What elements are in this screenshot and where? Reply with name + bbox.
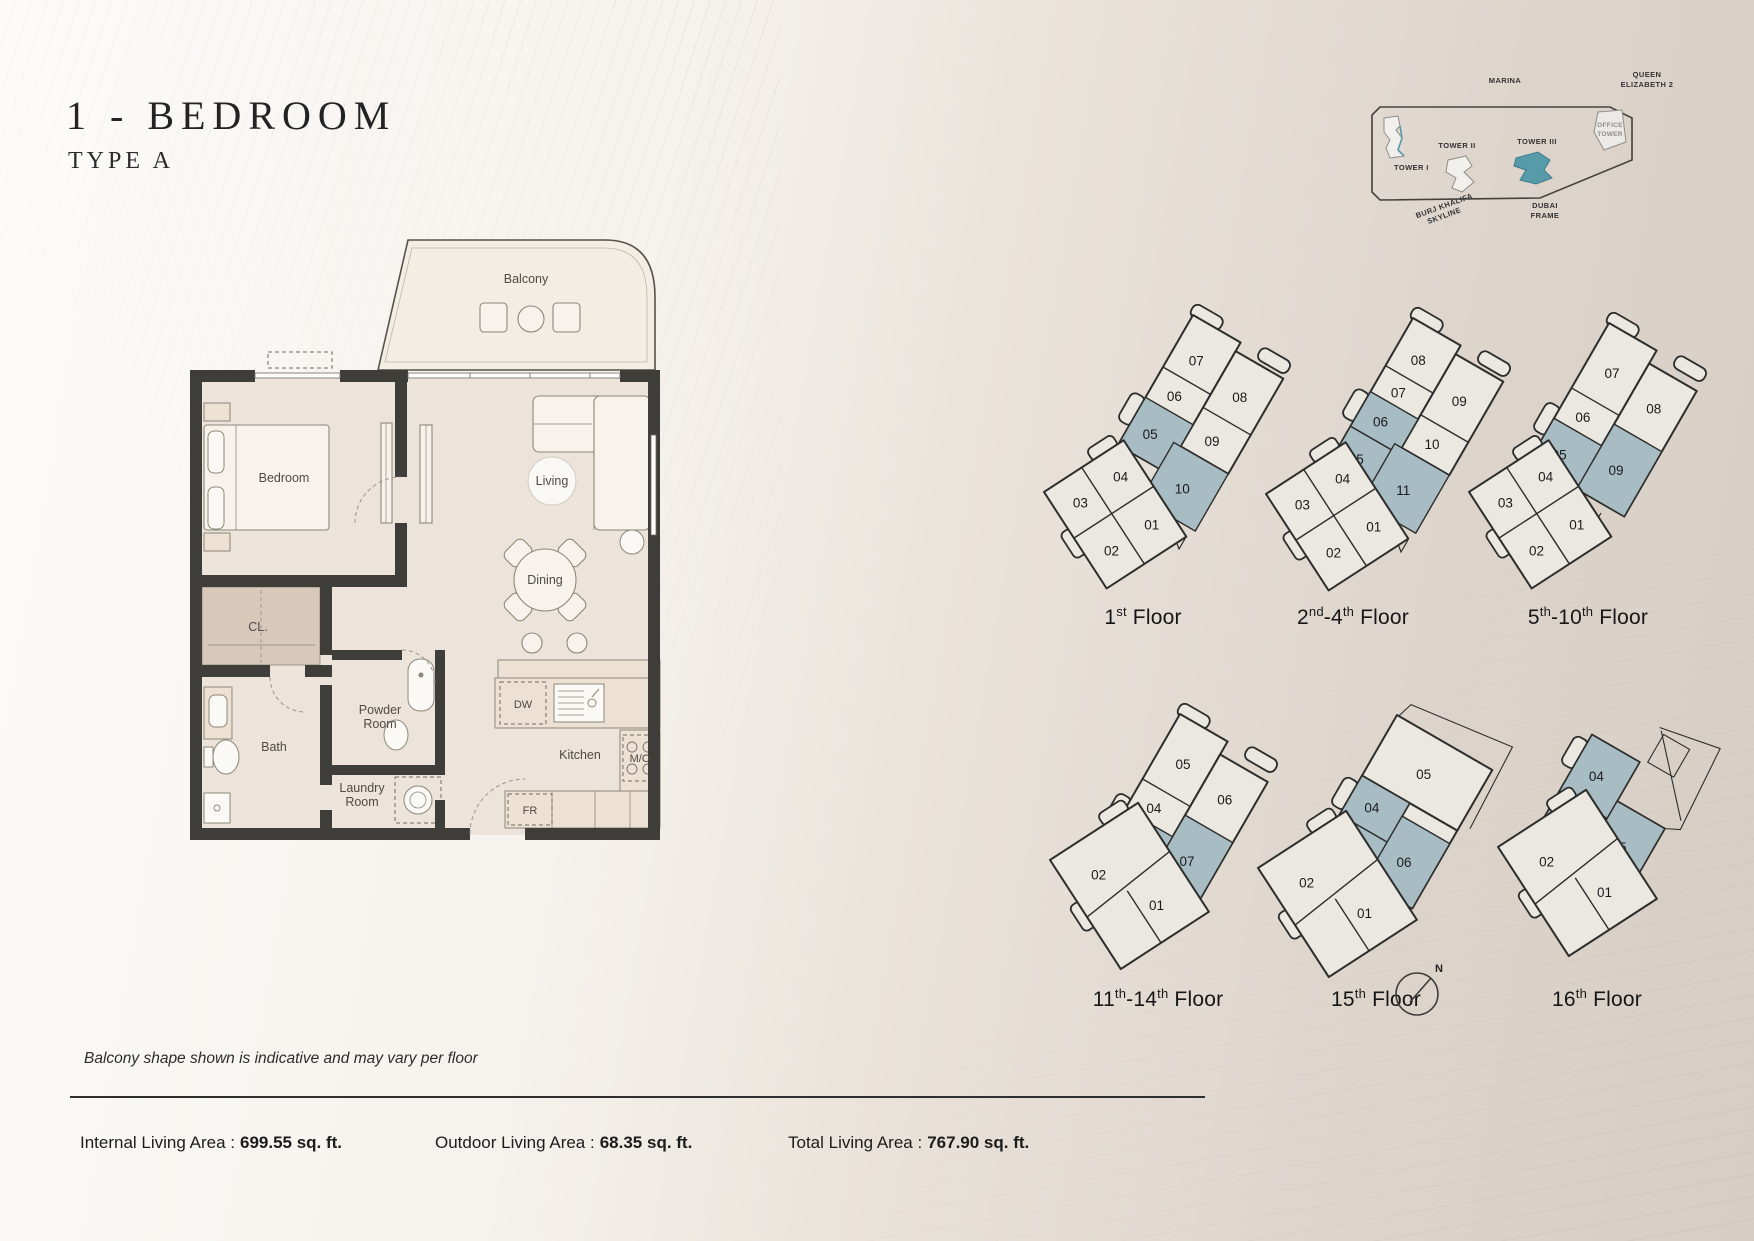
label-balcony: Balcony — [504, 272, 549, 286]
balcony-note: Balcony shape shown is indicative and ma… — [84, 1050, 478, 1068]
label-laundry-1: Laundry — [339, 781, 385, 795]
compass-needle — [1410, 978, 1431, 1002]
unit-number: 04 — [1146, 801, 1162, 816]
unit-number: 05 — [1175, 757, 1190, 772]
unit-number: 08 — [1646, 401, 1661, 416]
unit-number: 07 — [1391, 385, 1406, 400]
page-title: 1 - BEDROOM — [66, 92, 396, 139]
stat-value: 767.90 sq. ft. — [927, 1133, 1029, 1152]
floor-label-16th: 16th Floor — [1552, 986, 1642, 1012]
unit-number: 02 — [1326, 545, 1341, 560]
unit-number: 08 — [1411, 353, 1426, 368]
map-label-dubai-2: FRAME — [1531, 211, 1560, 220]
unit-number: 09 — [1204, 434, 1219, 449]
page-subtitle: TYPE A — [68, 148, 396, 175]
unit-number: 01 — [1357, 906, 1372, 921]
unit-number: 03 — [1073, 496, 1088, 511]
unit-number: 04 — [1335, 472, 1351, 487]
unit-number: 01 — [1144, 517, 1159, 532]
unit-number: 01 — [1149, 898, 1164, 913]
label-bath: Bath — [261, 740, 287, 754]
label-fridge: FR — [523, 805, 538, 817]
stat-label: Outdoor Living Area : — [435, 1133, 595, 1152]
unit-number: 01 — [1569, 517, 1584, 532]
map-label-marina: MARINA — [1489, 76, 1522, 85]
floor-label-5th-10th: 5th-10th Floor — [1528, 604, 1648, 630]
label-bedroom: Bedroom — [259, 471, 310, 485]
unit-number: 10 — [1175, 482, 1190, 497]
floorplate-16th-floor: 04 03 05 02 01 — [1480, 690, 1740, 990]
stat-label: Internal Living Area : — [80, 1133, 235, 1152]
ac-unit — [268, 352, 332, 368]
label-dining: Dining — [527, 573, 562, 587]
balcony-area — [378, 240, 655, 370]
floor-label-2nd-4th: 2nd-4th Floor — [1297, 604, 1409, 630]
site-boundary — [1372, 107, 1632, 200]
unit-number: 03 — [1498, 496, 1513, 511]
floor-label-1st: 1st Floor — [1104, 604, 1181, 630]
unit-number: 06 — [1373, 414, 1388, 429]
toilet-icon — [213, 740, 239, 774]
side-table — [620, 530, 644, 554]
unit-number: 07 — [1604, 366, 1619, 381]
label-laundry-2: Room — [345, 795, 378, 809]
map-label-office-2: TOWER — [1597, 131, 1623, 138]
kitchen-island — [495, 660, 660, 728]
stat-outdoor-area: Outdoor Living Area :68.35 sq. ft. — [435, 1133, 692, 1153]
bedroom-window — [255, 373, 340, 378]
unit-number: 04 — [1589, 769, 1605, 784]
unit-number: 10 — [1424, 437, 1439, 452]
stat-value: 699.55 sq. ft. — [240, 1133, 342, 1152]
unit-number: 02 — [1299, 876, 1314, 891]
unit-number: 06 — [1167, 389, 1182, 404]
nightstand — [204, 533, 230, 551]
unit-number: 05 — [1416, 767, 1431, 782]
unit-number: 01 — [1366, 519, 1381, 534]
unit-number: 09 — [1608, 463, 1623, 478]
unit-number: 06 — [1575, 410, 1590, 425]
floorplate-15th-floor: 05 04 03 06 02 01 — [1245, 700, 1515, 990]
tower-1-footprint — [1384, 116, 1404, 158]
bar-stool — [567, 633, 587, 653]
label-kitchen: Kitchen — [559, 748, 601, 762]
unit-number: 04 — [1113, 470, 1129, 485]
label-closet: CL. — [248, 620, 267, 634]
floorplan: Balcony Bedroom Living Dining CL. Powder… — [180, 235, 670, 850]
unit-number: 04 — [1538, 470, 1554, 485]
unit-number: 03 — [1295, 498, 1310, 513]
balcony-chair — [480, 303, 507, 332]
balcony-chair — [553, 303, 580, 332]
wardrobe — [381, 423, 392, 523]
unit-number: 07 — [1189, 353, 1204, 368]
tv-unit — [420, 425, 432, 523]
label-powder-1: Powder — [359, 703, 401, 717]
stat-value: 68.35 sq. ft. — [600, 1133, 693, 1152]
shower — [204, 793, 230, 823]
unit-number: 06 — [1396, 855, 1411, 870]
unit-number: 02 — [1091, 868, 1106, 883]
compass: N — [1385, 958, 1457, 1030]
balcony-glazing — [408, 373, 620, 378]
balcony-table — [518, 306, 544, 332]
map-label-tower3: TOWER III — [1517, 137, 1557, 146]
map-label-dubai-1: DUBAI — [1532, 201, 1558, 210]
map-label-queen-1: QUEEN — [1633, 70, 1662, 79]
office-tower-footprint — [1594, 110, 1626, 150]
unit-number: 05 — [1143, 427, 1158, 442]
map-label-office-1: OFFICE — [1597, 122, 1623, 129]
unit-number: 08 — [1232, 390, 1247, 405]
site-map: MARINA QUEEN ELIZABETH 2 TOWER I TOWER I… — [1360, 60, 1705, 230]
unit-number: 01 — [1597, 885, 1612, 900]
stat-total-area: Total Living Area :767.90 sq. ft. — [788, 1133, 1029, 1153]
label-microwave-oven: M/O — [630, 753, 651, 765]
unit-number: 02 — [1529, 543, 1544, 558]
title-block: 1 - BEDROOM TYPE A — [66, 92, 396, 175]
map-label-tower2: TOWER II — [1438, 141, 1475, 150]
unit-number: 04 — [1364, 801, 1380, 816]
tower-2-footprint — [1446, 156, 1474, 192]
living-window — [651, 435, 656, 535]
unit-number: 11 — [1396, 483, 1410, 498]
label-living: Living — [536, 474, 569, 488]
nightstand — [204, 403, 230, 421]
unit-number: 06 — [1217, 792, 1232, 807]
brochure-page: { "page": { "title": "1 - BEDROOM", "sub… — [0, 0, 1754, 1241]
unit-number: 02 — [1539, 855, 1554, 870]
unit-number: 02 — [1104, 543, 1119, 558]
divider-rule — [70, 1096, 1205, 1098]
map-label-tower1: TOWER I — [1394, 163, 1429, 172]
tower-3-footprint — [1514, 152, 1552, 184]
stat-label: Total Living Area : — [788, 1133, 922, 1152]
bar-stool — [522, 633, 542, 653]
label-dishwasher: DW — [514, 699, 533, 711]
floor-label-11th-14th: 11th-14th Floor — [1093, 986, 1224, 1012]
floorplate-5th-10th-floor: 07 06 05 08 09 04 03 01 02 — [1458, 290, 1728, 600]
compass-n-label: N — [1435, 963, 1443, 975]
map-label-queen-2: ELIZABETH 2 — [1621, 80, 1674, 89]
label-powder-2: Room — [363, 717, 396, 731]
unit-number: 07 — [1179, 854, 1194, 869]
stat-internal-area: Internal Living Area :699.55 sq. ft. — [80, 1133, 342, 1153]
